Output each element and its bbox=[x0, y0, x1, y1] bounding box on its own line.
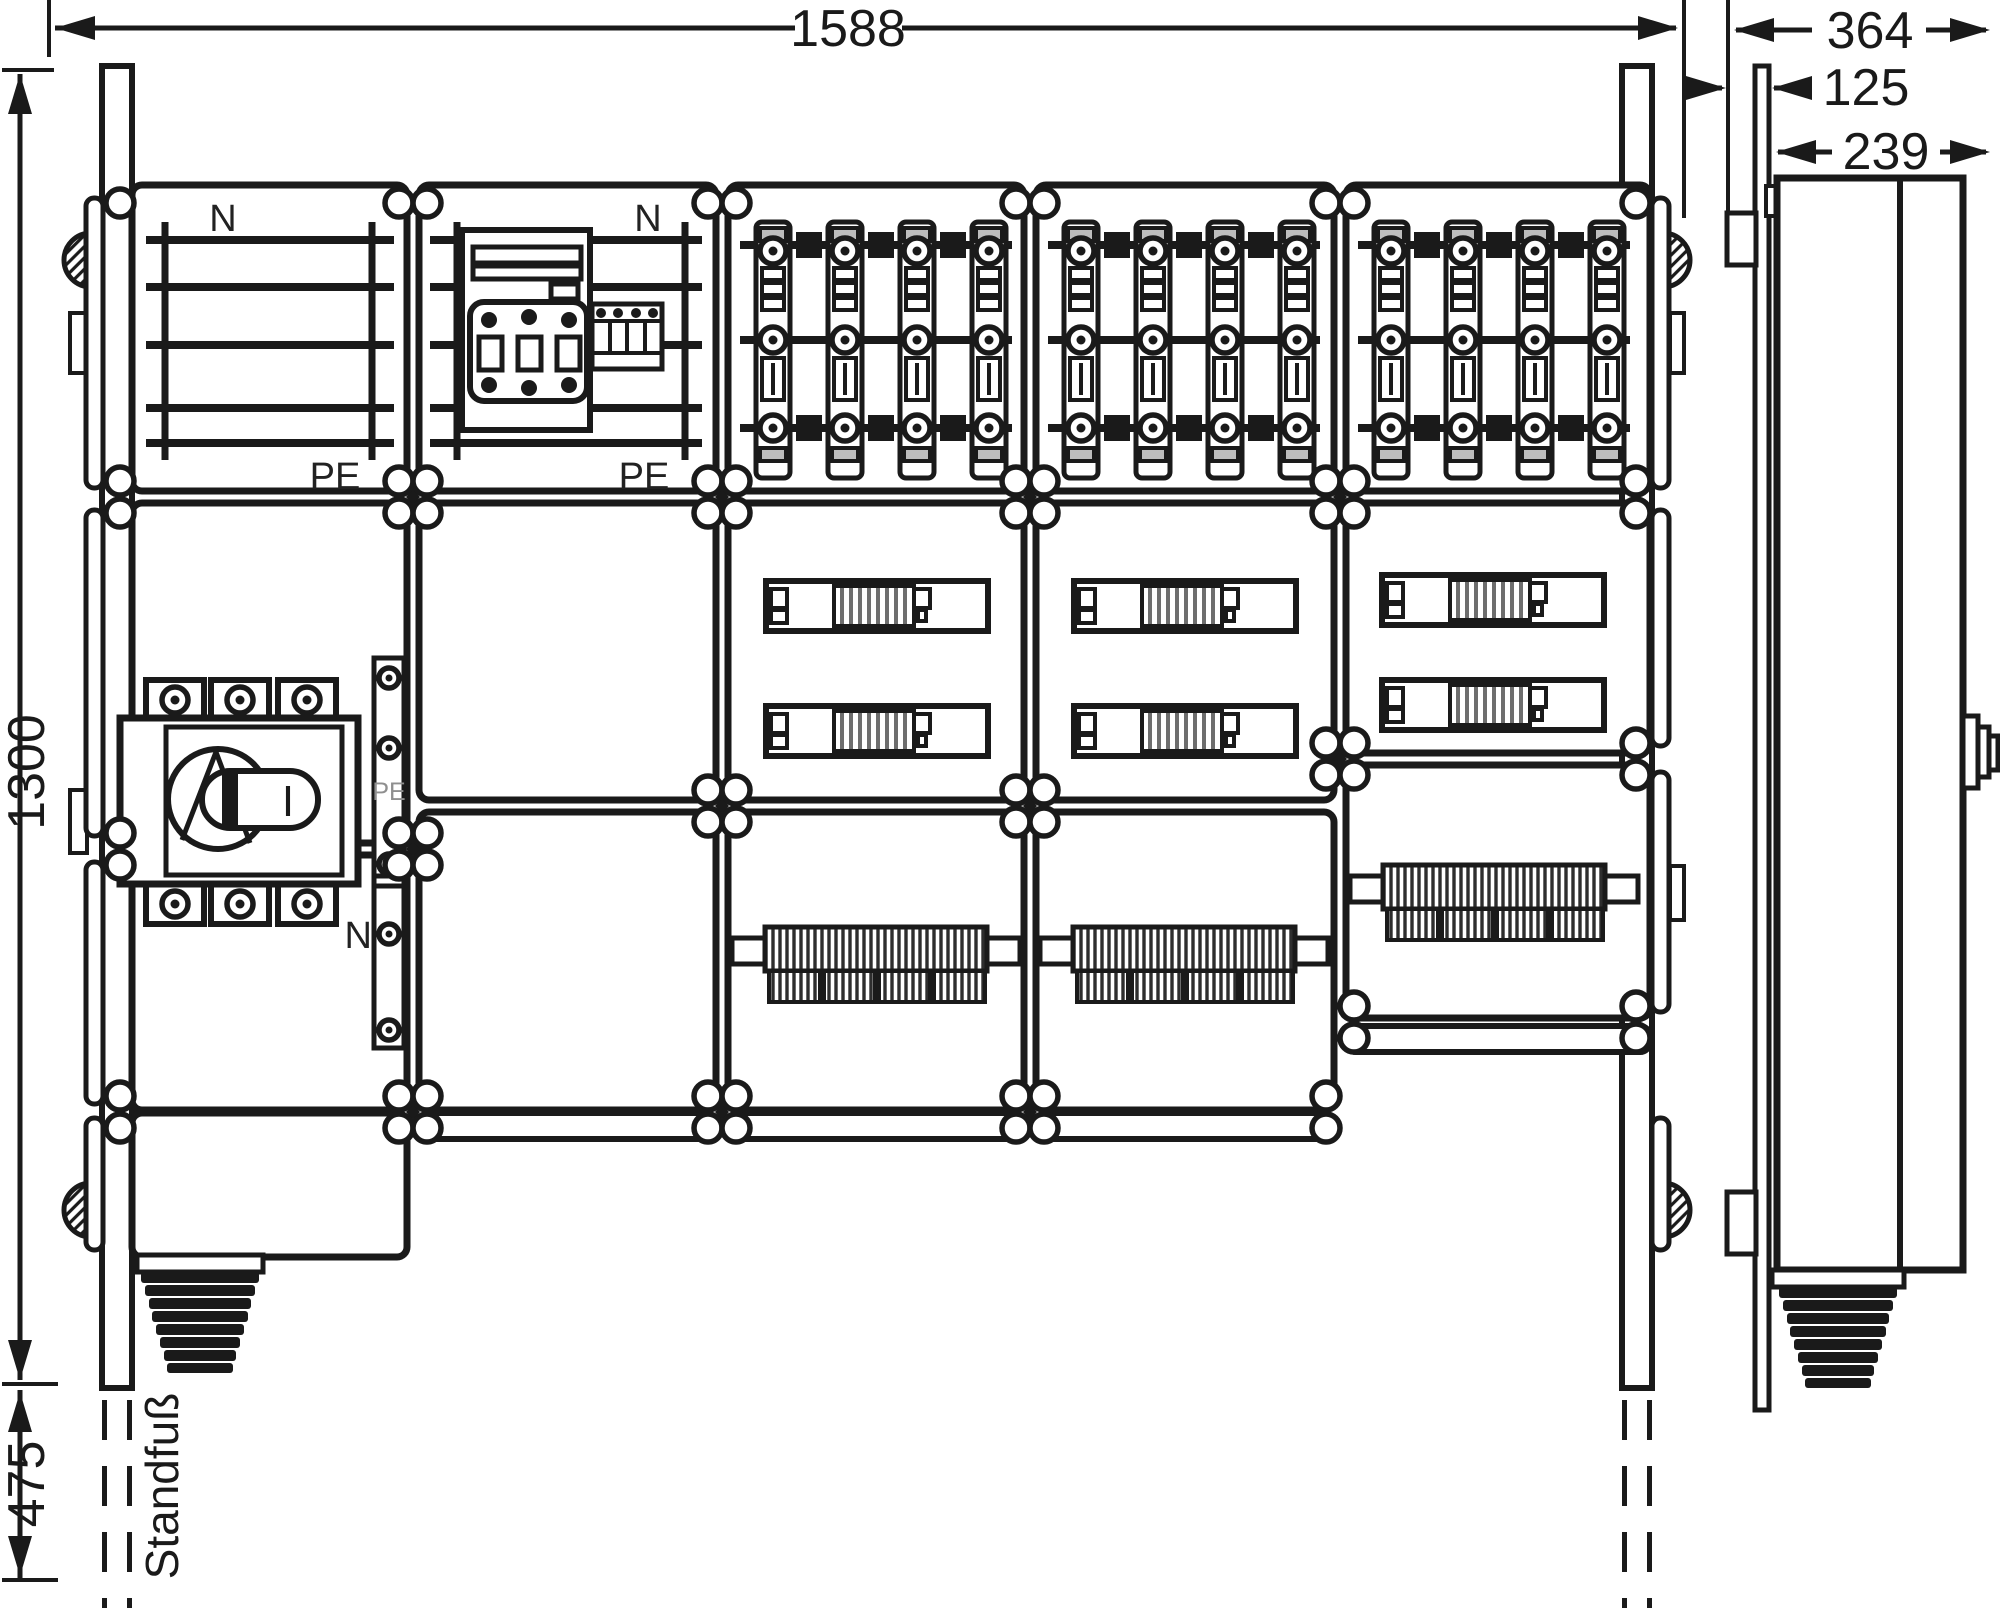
side-view bbox=[1727, 66, 1998, 1410]
dim-enclosure-height: 1300 bbox=[0, 70, 58, 1384]
terminal-block bbox=[592, 304, 662, 369]
cable-gland-side bbox=[1772, 1270, 1904, 1388]
label-pe-panel2: PE bbox=[619, 456, 670, 498]
technical-drawing: 1588 364 125 239 1300 475 Stan bbox=[0, 0, 2000, 1614]
plinth-box bbox=[132, 1113, 407, 1257]
side-total-depth-value: 364 bbox=[1827, 2, 1914, 60]
side-front-depth-value: 125 bbox=[1823, 59, 1910, 117]
dim-stand-height: 475 Standfuß bbox=[0, 1390, 188, 1580]
enclosure-height-value: 1300 bbox=[0, 714, 56, 830]
side-body bbox=[1777, 178, 1963, 1270]
side-body-depth-value: 239 bbox=[1843, 123, 1930, 181]
drawing-page: 1588 364 125 239 1300 475 Stan bbox=[0, 0, 2000, 1614]
label-n-strip: N bbox=[345, 915, 372, 957]
label-pe-strip: PE bbox=[372, 778, 405, 806]
fuse-switch-device bbox=[462, 230, 590, 430]
wall-bracket-bottom bbox=[1727, 1192, 1756, 1254]
label-n-panel1: N bbox=[209, 198, 236, 240]
label-pe-panel1: PE bbox=[310, 456, 361, 498]
label-n-panel2: N bbox=[634, 198, 661, 240]
stand-height-value: 475 bbox=[0, 1441, 56, 1528]
side-switch-handle bbox=[1963, 716, 1998, 788]
stand-foot-label: Standfuß bbox=[136, 1393, 188, 1580]
wall-bracket-top bbox=[1727, 213, 1756, 265]
switch-on-label: I bbox=[282, 777, 294, 826]
overall-width-value: 1588 bbox=[790, 0, 906, 58]
cable-gland-front bbox=[137, 1255, 263, 1373]
